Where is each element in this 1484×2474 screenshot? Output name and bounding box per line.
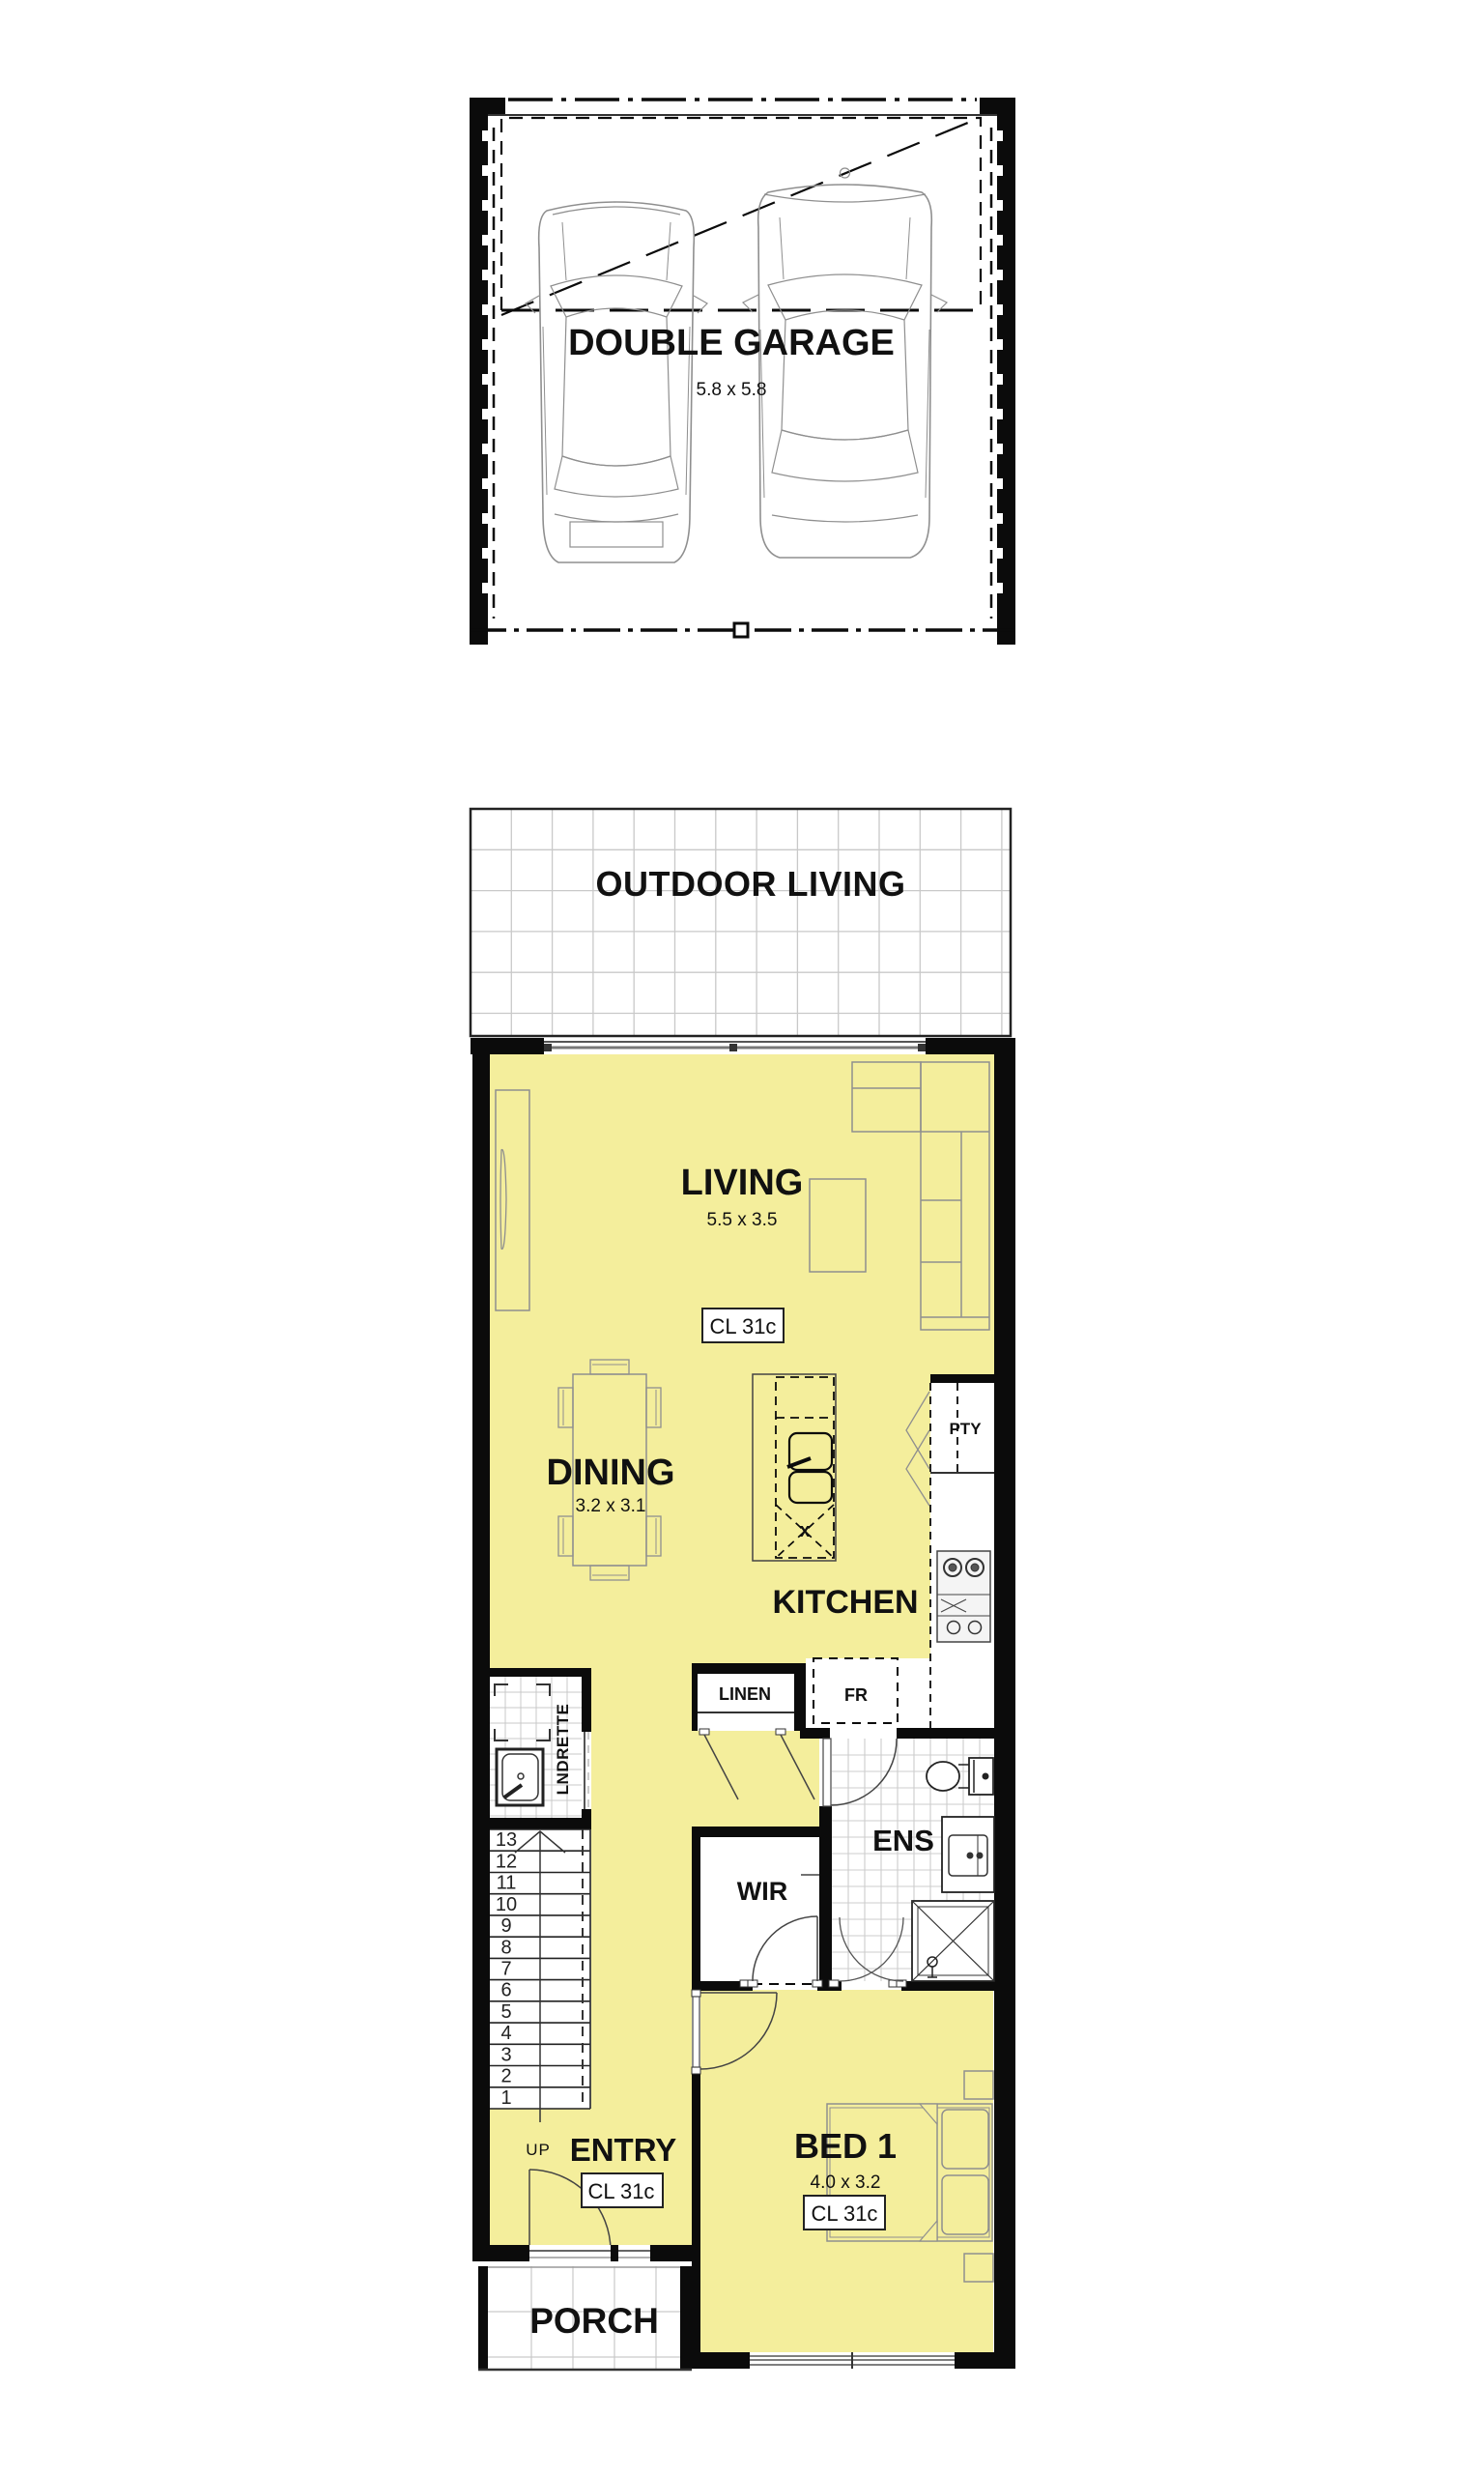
svg-text:7: 7 xyxy=(500,1959,511,1980)
svg-text:WIR: WIR xyxy=(737,1877,787,1906)
svg-text:9: 9 xyxy=(500,1915,511,1937)
svg-text:12: 12 xyxy=(496,1851,517,1872)
svg-text:8: 8 xyxy=(500,1937,511,1958)
svg-text:CL 31c: CL 31c xyxy=(812,2201,878,2226)
svg-text:3.2 x 3.1: 3.2 x 3.1 xyxy=(576,1496,646,1516)
svg-text:5: 5 xyxy=(500,2001,511,2023)
svg-text:11: 11 xyxy=(497,1873,517,1894)
svg-text:5.8 x 5.8: 5.8 x 5.8 xyxy=(697,380,767,400)
svg-text:LNDRETTE: LNDRETTE xyxy=(554,1704,572,1796)
svg-text:PORCH: PORCH xyxy=(529,2301,659,2341)
svg-text:3: 3 xyxy=(500,2044,511,2065)
svg-text:OUTDOOR LIVING: OUTDOOR LIVING xyxy=(596,864,906,904)
svg-text:10: 10 xyxy=(496,1894,517,1915)
svg-text:LIVING: LIVING xyxy=(681,1163,804,1203)
svg-text:ENS: ENS xyxy=(872,1824,934,1857)
svg-text:ENTRY: ENTRY xyxy=(570,2132,677,2168)
svg-text:DINING: DINING xyxy=(547,1453,675,1493)
svg-text:6: 6 xyxy=(500,1980,511,2001)
svg-text:4: 4 xyxy=(500,2023,511,2044)
svg-text:DOUBLE GARAGE: DOUBLE GARAGE xyxy=(568,323,895,363)
svg-text:13: 13 xyxy=(496,1829,517,1851)
svg-text:4.0 x 3.2: 4.0 x 3.2 xyxy=(811,2172,881,2193)
svg-text:PTY: PTY xyxy=(949,1420,982,1438)
svg-text:CL 31c: CL 31c xyxy=(710,1314,777,1338)
svg-text:FR: FR xyxy=(844,1685,868,1705)
svg-text:1: 1 xyxy=(500,2087,511,2109)
svg-text:CL 31c: CL 31c xyxy=(588,2179,655,2203)
svg-text:KITCHEN: KITCHEN xyxy=(772,1584,918,1621)
svg-text:BED 1: BED 1 xyxy=(794,2126,897,2166)
svg-text:LINEN: LINEN xyxy=(719,1684,771,1704)
svg-text:UP: UP xyxy=(526,2141,551,2159)
svg-text:2: 2 xyxy=(500,2066,511,2087)
svg-text:x: x xyxy=(799,1520,810,1541)
svg-text:5.5 x 3.5: 5.5 x 3.5 xyxy=(707,1210,778,1230)
